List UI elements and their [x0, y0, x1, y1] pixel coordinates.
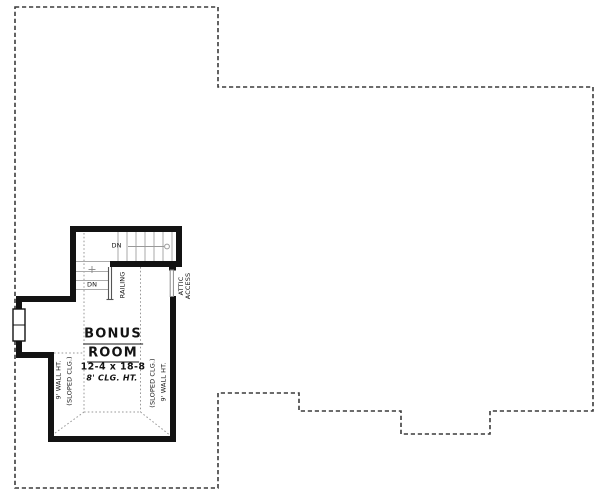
down-label-upper: DN [111, 243, 121, 250]
floor-plan: BONUS ROOM 12-4 x 18-8 8' CLG. HT. 9' WA… [0, 0, 600, 497]
ceiling-height-label: 8' CLG. HT. [86, 373, 137, 382]
attic-access-label: ATTIC ACCESS [178, 273, 192, 299]
wall-height-label-right: 9' WALL HT. [160, 362, 167, 401]
wall-height-label-left: 9' WALL HT. [55, 360, 62, 399]
room-dimensions: 12-4 x 18-8 [81, 361, 146, 372]
attic-access-label-line2: ACCESS [184, 273, 192, 299]
room-name-line2: ROOM [87, 344, 139, 363]
sloped-ceiling-label-right: (SLOPED CLG.) [149, 358, 156, 407]
roof-outline [15, 7, 593, 488]
attic-access-door [170, 270, 173, 297]
room-name-line1: BONUS [83, 326, 143, 345]
room-name: BONUS ROOM [83, 326, 143, 363]
railing-label: RAILING [119, 272, 126, 299]
down-label-lower: DN [87, 282, 97, 289]
window [13, 309, 25, 341]
floor-plan-drawing [0, 0, 600, 497]
sloped-ceiling-label-left: (SLOPED CLG.) [66, 356, 73, 405]
